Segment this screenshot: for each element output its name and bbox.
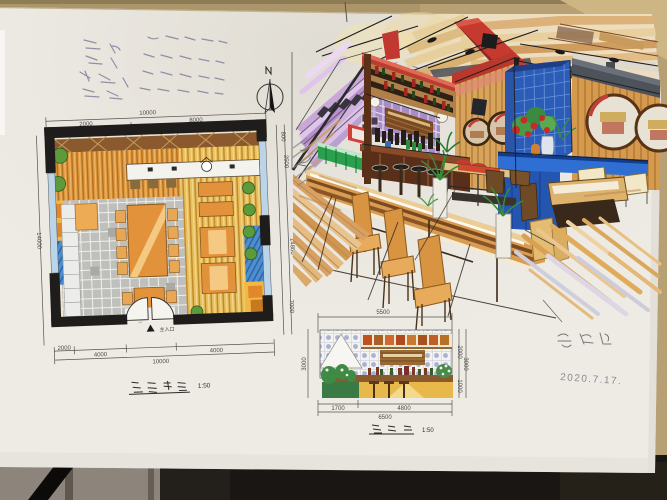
- svg-text:1700: 1700: [331, 406, 345, 412]
- svg-text:5500: 5500: [376, 310, 390, 316]
- svg-text:2000: 2000: [57, 345, 71, 352]
- svg-text:3000: 3000: [302, 357, 308, 371]
- svg-text:7000: 7000: [288, 300, 295, 314]
- svg-text:6500: 6500: [378, 415, 392, 421]
- svg-text:2500: 2500: [282, 155, 289, 169]
- svg-text:4800: 4800: [397, 406, 411, 412]
- svg-text:1000: 1000: [456, 379, 462, 393]
- svg-text:10000: 10000: [152, 359, 170, 366]
- svg-text:1:50: 1:50: [198, 382, 211, 389]
- svg-text:10000: 10000: [139, 110, 157, 117]
- svg-text:主入口: 主入口: [159, 326, 174, 334]
- svg-text:1:50: 1:50: [422, 428, 434, 434]
- svg-text:2000: 2000: [456, 345, 462, 359]
- svg-text:14000: 14000: [35, 232, 42, 250]
- svg-text:3000: 3000: [462, 357, 468, 371]
- svg-text:800: 800: [279, 131, 285, 142]
- svg-text:4000: 4000: [94, 352, 108, 359]
- svg-text:4000: 4000: [210, 348, 224, 355]
